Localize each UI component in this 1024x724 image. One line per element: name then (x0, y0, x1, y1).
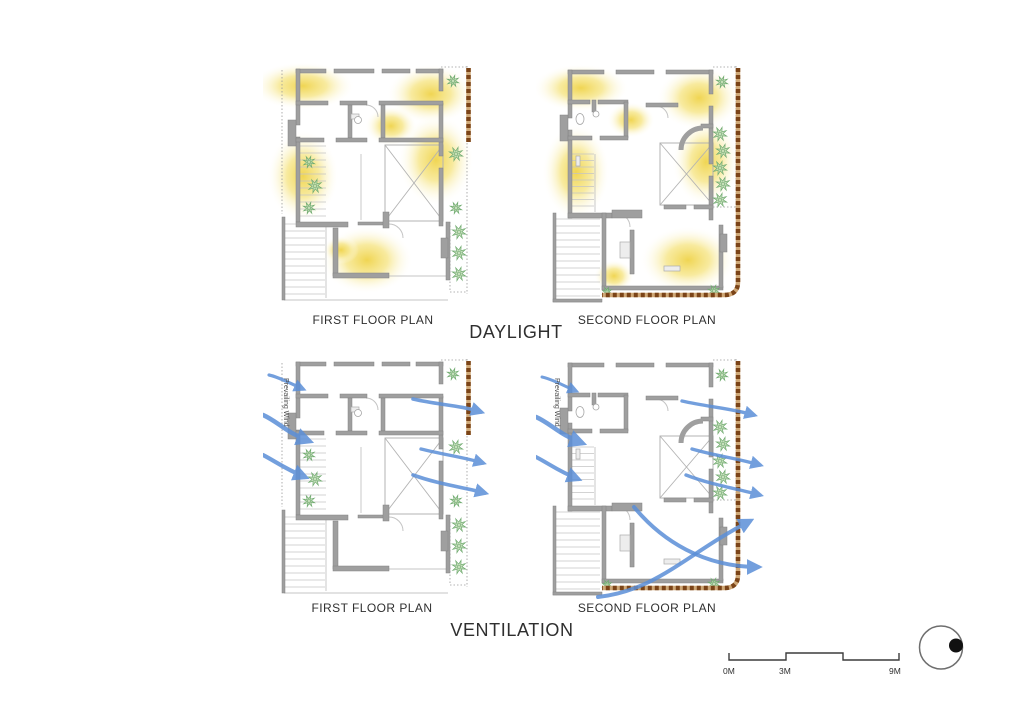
plant-icon (713, 486, 726, 499)
second-floor-plan-daylight (536, 62, 771, 312)
first-floor-plan-ventilation (263, 355, 498, 605)
plant-icon (449, 440, 462, 453)
prevailing-wind-label-first-floor: Prevailing Wind (281, 378, 290, 434)
ventilation-second-floor-label: SECOND FLOOR PLAN (537, 601, 757, 615)
stairs-and-guides (284, 398, 448, 593)
wind-arrow-icon (682, 401, 754, 415)
ventilation-section-title: VENTILATION (402, 620, 622, 641)
fixtures (355, 410, 362, 417)
wind-arrow-icon (413, 475, 485, 493)
plant-icon (452, 518, 465, 531)
scale-tick-9m: 9M (889, 666, 913, 676)
second-floor-plan-ventilation (536, 355, 771, 605)
wind-arrow-icon (413, 399, 481, 412)
plant-icon (716, 437, 729, 450)
wind-arrow-icon (421, 449, 483, 463)
architectural-analysis-sheet: FIRST FLOOR PLAN SECOND FLOOR PLAN DAYLI… (0, 0, 1024, 724)
plant-icon (452, 246, 465, 259)
plant-icon (713, 420, 726, 433)
plant-icon (303, 449, 314, 460)
stairs-and-guides (556, 399, 668, 595)
scale-tick-3m: 3M (779, 666, 803, 676)
plant-icon (447, 368, 458, 379)
plant-icon (450, 495, 461, 506)
fixtures (355, 117, 362, 124)
ventilation-first-floor-label: FIRST FLOOR PLAN (262, 601, 482, 615)
plant-icon (452, 267, 465, 280)
fixtures (576, 111, 599, 125)
plant-icon (303, 495, 314, 506)
prevailing-wind-label-second-floor: Prevailing Wind (552, 378, 561, 434)
scale-bar-line (718, 645, 913, 665)
daylight-section-title: DAYLIGHT (406, 322, 626, 343)
void-x-marker (660, 436, 713, 498)
scale-bar: 0M 3M 9M (718, 645, 918, 681)
plant-icon (716, 470, 729, 483)
plant-icon (450, 202, 461, 213)
scale-tick-0m: 0M (723, 666, 747, 676)
plant-icon (452, 225, 465, 238)
north-indicator-icon (915, 621, 971, 677)
plant-icon (452, 560, 465, 573)
first-floor-plan-daylight (263, 62, 498, 312)
plant-icon (716, 369, 727, 380)
plant-icon (452, 539, 465, 552)
fixtures (576, 404, 599, 418)
